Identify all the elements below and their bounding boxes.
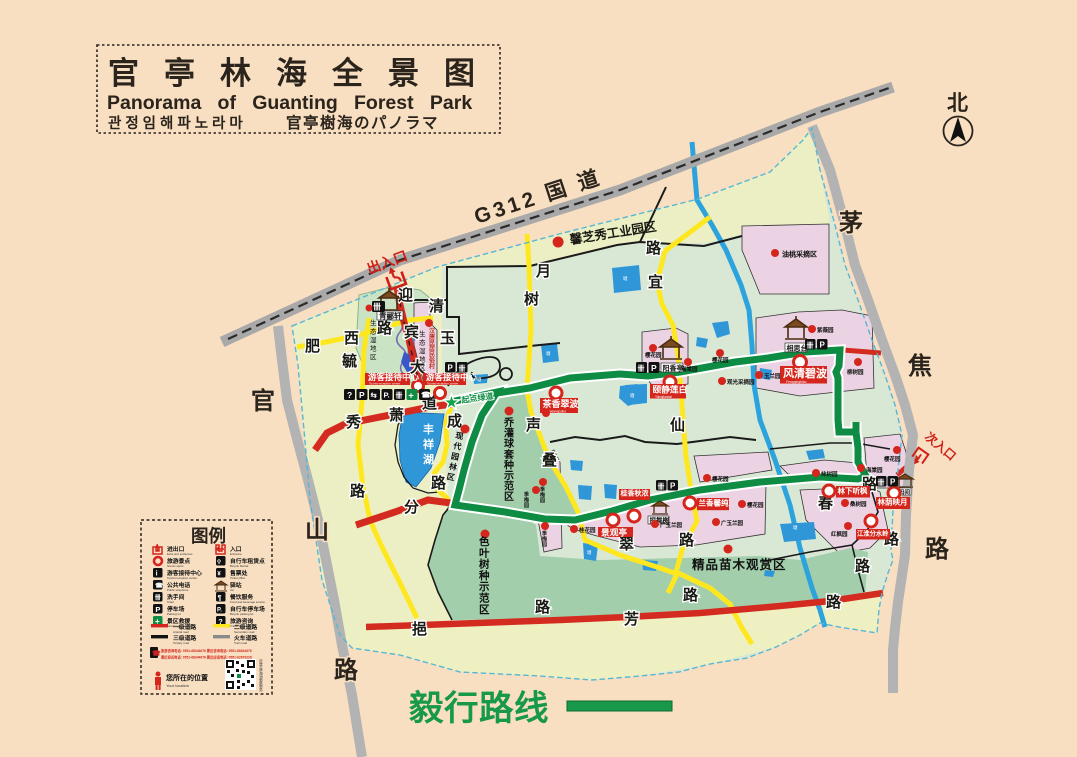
svg-text:卌: 卌 xyxy=(878,478,885,487)
svg-text:Ticket office: Ticket office xyxy=(230,576,246,580)
svg-text:玉: 玉 xyxy=(440,330,455,347)
svg-text:塘: 塘 xyxy=(623,275,628,282)
svg-text:挹: 挹 xyxy=(412,620,427,638)
svg-text:塘: 塘 xyxy=(546,350,551,357)
svg-text:路: 路 xyxy=(377,319,393,337)
svg-text:P: P xyxy=(448,364,454,373)
svg-text:红枫园: 红枫园 xyxy=(831,530,848,538)
svg-text:季梅园: 季梅园 xyxy=(541,530,547,548)
svg-text:色叶树种示范区: 色叶树种示范区 xyxy=(478,535,490,616)
svg-text:汉唐民居民俗村: 汉唐民居民俗村 xyxy=(428,327,436,370)
svg-text:路: 路 xyxy=(855,557,871,575)
svg-text:路: 路 xyxy=(350,482,366,500)
svg-text:图例: 图例 xyxy=(191,526,226,546)
svg-text:P: P xyxy=(651,363,657,373)
svg-text:P: P xyxy=(155,605,160,614)
svg-text:季梅园: 季梅园 xyxy=(539,486,545,504)
svg-text:¶: ¶ xyxy=(218,595,222,602)
svg-text:相思台: 相思台 xyxy=(787,344,808,353)
svg-text:焦: 焦 xyxy=(908,352,932,380)
svg-text:海棠园: 海棠园 xyxy=(866,466,883,474)
svg-text:柿树园: 柿树园 xyxy=(821,470,838,478)
svg-text:宜: 宜 xyxy=(648,273,663,291)
svg-text:山: 山 xyxy=(305,517,329,544)
svg-text:桑树园: 桑树园 xyxy=(849,500,867,508)
svg-text:旅游咨询电话: 0551-68344676 景区咨询电话:: 旅游咨询电话: 0551-68344676 景区咨询电话: 0551-68344… xyxy=(160,648,252,653)
svg-text:路: 路 xyxy=(334,656,359,684)
svg-text:樱花园: 樱花园 xyxy=(645,351,662,359)
svg-text:卌: 卌 xyxy=(638,364,645,373)
svg-text:兰香馨纯: 兰香馨纯 xyxy=(699,497,729,507)
svg-text:毓: 毓 xyxy=(342,352,357,370)
svg-text:P.: P. xyxy=(384,391,390,400)
svg-text:广玉兰园: 广玉兰园 xyxy=(721,519,744,527)
svg-text:Yijinglianbai: Yijinglianbai xyxy=(655,395,672,399)
svg-text:?: ? xyxy=(347,390,352,400)
svg-text:Exits and entrances: Exits and entrances xyxy=(167,552,193,556)
svg-text:Arterial road: Arterial road xyxy=(173,630,189,634)
svg-text:路: 路 xyxy=(646,239,662,257)
svg-text:塘: 塘 xyxy=(630,392,635,399)
svg-text:宾: 宾 xyxy=(404,323,419,341)
svg-text:Public telephone: Public telephone xyxy=(167,588,189,592)
svg-text:茶香翠波: 茶香翠波 xyxy=(542,398,580,409)
svg-text:油桃采摘区: 油桃采摘区 xyxy=(782,250,817,259)
svg-text:P.: P. xyxy=(217,608,222,614)
svg-text:路: 路 xyxy=(826,593,842,611)
svg-text:路: 路 xyxy=(431,474,447,492)
svg-text:观光采摘园: 观光采摘园 xyxy=(727,378,755,386)
svg-text:Train road: Train road xyxy=(234,641,247,645)
svg-text:Fengqingbibo: Fengqingbibo xyxy=(786,380,807,384)
svg-text:卌: 卌 xyxy=(396,391,403,400)
svg-text:桂花园: 桂花园 xyxy=(578,526,596,534)
svg-text:樱花园: 樱花园 xyxy=(712,356,729,364)
svg-text:Tourist reception center: Tourist reception center xyxy=(427,382,458,386)
svg-text:P: P xyxy=(890,478,896,487)
svg-text:☎: ☎ xyxy=(421,391,431,400)
svg-text:路: 路 xyxy=(679,531,695,549)
svg-text:☎: ☎ xyxy=(155,582,164,590)
svg-text:路: 路 xyxy=(535,598,551,616)
svg-text:卌: 卌 xyxy=(155,594,161,602)
svg-text:Food and beverage service: Food and beverage service xyxy=(230,600,265,604)
svg-text:樱花园: 樱花园 xyxy=(712,475,729,483)
svg-text:玉兰园: 玉兰园 xyxy=(764,372,781,380)
svg-text:芳: 芳 xyxy=(624,610,639,628)
svg-text:路: 路 xyxy=(683,586,699,604)
svg-text:Entrance: Entrance xyxy=(230,552,242,556)
svg-text:官亭林海游客服务: 官亭林海游客服务 xyxy=(259,659,263,692)
svg-text:塘: 塘 xyxy=(793,524,798,531)
svg-text:仙: 仙 xyxy=(670,416,685,434)
svg-text:P: P xyxy=(359,390,365,400)
svg-text:毅行路线: 毅行路线 xyxy=(409,689,549,728)
svg-text:Toilet: Toilet xyxy=(167,600,174,604)
svg-text:肥: 肥 xyxy=(305,338,320,355)
svg-text:⚲: ⚲ xyxy=(217,559,221,566)
svg-text:萧: 萧 xyxy=(389,406,404,424)
svg-text:Tourist reception center: Tourist reception center xyxy=(369,382,400,386)
svg-text:Parking lot: Parking lot xyxy=(167,612,181,616)
svg-text:风清碧波: 风清碧波 xyxy=(783,366,828,380)
svg-text:樱花园: 樱花园 xyxy=(884,455,901,463)
svg-text:北: 北 xyxy=(947,92,968,115)
svg-text:官亭林海全景图: 官亭林海全景图 xyxy=(108,56,500,91)
svg-text:P: P xyxy=(820,341,826,350)
svg-text:塘: 塘 xyxy=(477,376,482,383)
svg-text:Bicycle parking lot: Bicycle parking lot xyxy=(230,612,253,616)
svg-text:Tertiary road: Tertiary road xyxy=(173,641,189,645)
svg-text:Your location: Your location xyxy=(166,683,189,688)
svg-text:官亭樹海のパノラマ: 官亭樹海のパノラマ xyxy=(286,113,439,132)
svg-text:分: 分 xyxy=(404,499,419,516)
svg-text:塘: 塘 xyxy=(587,549,592,556)
svg-text:颐静莲白: 颐静莲白 xyxy=(653,384,688,395)
svg-text:Scenic spots: Scenic spots xyxy=(167,564,184,568)
svg-text:紫薇园: 紫薇园 xyxy=(817,326,834,334)
svg-text:树: 树 xyxy=(524,290,539,308)
svg-text:迎: 迎 xyxy=(398,286,413,304)
svg-text:官: 官 xyxy=(251,387,275,415)
svg-text:翠: 翠 xyxy=(619,536,634,553)
svg-text:您所在的位置: 您所在的位置 xyxy=(166,673,208,682)
svg-text:景观亭: 景观亭 xyxy=(601,526,627,537)
svg-text:茅: 茅 xyxy=(839,210,863,237)
svg-text:游客接待中心: 游客接待中心 xyxy=(426,372,478,382)
svg-text:柳树园: 柳树园 xyxy=(847,368,864,376)
svg-text:江淮分水岭: 江淮分水岭 xyxy=(857,528,889,537)
svg-text:乔灌球套种示范区: 乔灌球套种示范区 xyxy=(503,416,515,503)
svg-text:卌: 卌 xyxy=(373,302,381,312)
svg-text:生态湿地区: 生态湿地区 xyxy=(419,329,426,372)
svg-text:Inn: Inn xyxy=(230,588,234,592)
svg-text:叠: 叠 xyxy=(542,451,557,469)
svg-text:Tourist reception center: Tourist reception center xyxy=(167,576,197,580)
svg-text:Secondary road: Secondary road xyxy=(234,630,255,634)
svg-text:秀: 秀 xyxy=(345,413,362,431)
svg-text:林荫映月: 林荫映月 xyxy=(878,496,908,506)
svg-text:i: i xyxy=(156,571,158,578)
svg-text:桂香秋浓: 桂香秋浓 xyxy=(620,489,650,498)
svg-text:路: 路 xyxy=(925,535,950,563)
svg-text:⇆: ⇆ xyxy=(371,391,378,400)
svg-text:广玉兰园: 广玉兰园 xyxy=(660,521,683,529)
svg-text:Bicycle Rental: Bicycle Rental xyxy=(230,564,249,568)
svg-text:西: 西 xyxy=(344,330,359,347)
svg-text:季梅园: 季梅园 xyxy=(523,491,529,509)
svg-text:生态湿地区: 生态湿地区 xyxy=(370,318,377,361)
svg-text:声: 声 xyxy=(525,416,541,434)
svg-text:精品苗木观赏区: 精品苗木观赏区 xyxy=(692,557,787,572)
svg-text:月: 月 xyxy=(535,263,551,280)
svg-text:☎: ☎ xyxy=(152,650,161,658)
svg-text:Panorama of Guanting For: Panorama of Guanting Forest Park xyxy=(107,92,472,114)
svg-text:林下听枫: 林下听枫 xyxy=(838,485,868,495)
svg-text:+: + xyxy=(408,390,414,401)
svg-text:海棠园: 海棠园 xyxy=(681,365,698,373)
svg-text:景区投诉电话: 0551-68344676 景区应巡电话:: 景区投诉电话: 0551-68344676 景区应巡电话: 0551-62679… xyxy=(161,655,252,660)
svg-text:관정임해파노라마: 관정임해파노라마 xyxy=(108,114,247,132)
svg-text:卌: 卌 xyxy=(807,341,814,350)
svg-text:樱花园: 樱花园 xyxy=(747,501,764,509)
svg-text:清: 清 xyxy=(429,297,444,315)
svg-text:成: 成 xyxy=(447,412,462,430)
svg-text:卌: 卌 xyxy=(459,364,466,373)
svg-text:丰祥湖: 丰祥湖 xyxy=(423,422,434,466)
svg-text:P: P xyxy=(670,482,676,491)
svg-text:卌: 卌 xyxy=(658,482,665,491)
svg-text:游客接待中心: 游客接待中心 xyxy=(368,372,420,382)
